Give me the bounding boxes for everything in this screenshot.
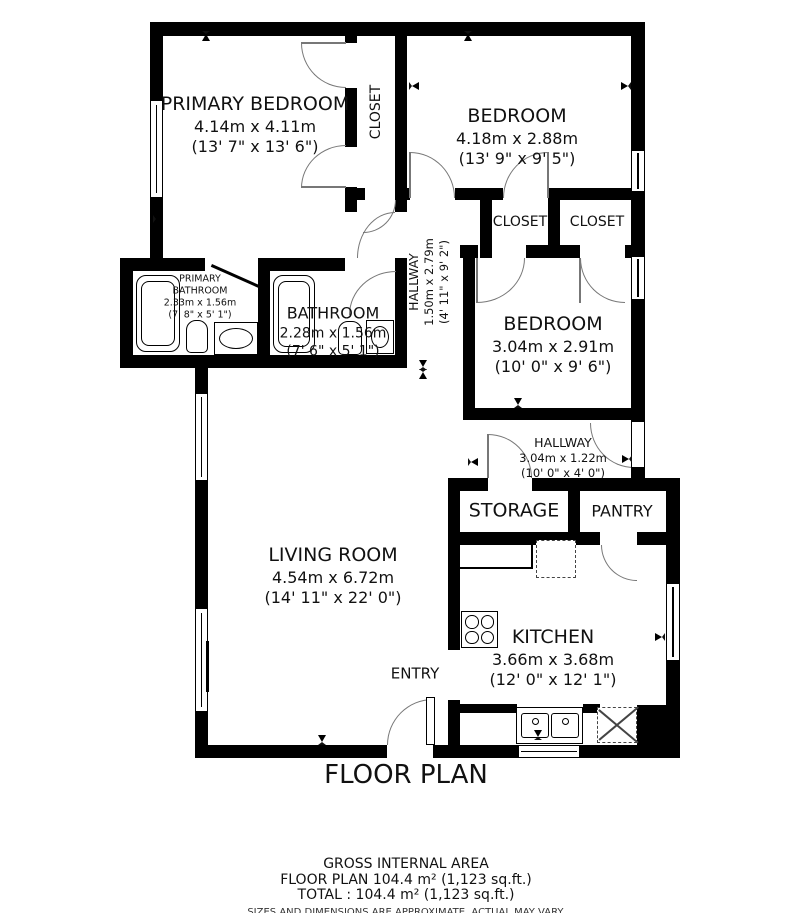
- wall: [258, 258, 345, 271]
- bathroom-label: BATHROOM 2.28m x 1.56m (7' 6" x 5' 1"): [280, 303, 387, 360]
- living-room-label: LIVING ROOM 4.54m x 6.72m (14' 11" x 22'…: [264, 543, 401, 609]
- door-leaf: [301, 186, 346, 188]
- dimension-arrow: [468, 458, 478, 466]
- gross-internal-area: GROSS INTERNAL AREA: [0, 857, 812, 873]
- dimension-arrow: [534, 730, 542, 740]
- kitchen-label: KITCHEN 3.66m x 3.68m (12' 0" x 12' 1"): [490, 625, 617, 691]
- door-arc: [601, 545, 637, 581]
- door-leaf: [487, 434, 489, 478]
- wall: [433, 745, 518, 758]
- dimension-arrow: [621, 82, 631, 90]
- wall: [195, 481, 208, 608]
- toilet: [186, 320, 208, 353]
- counter-line: [460, 567, 533, 569]
- wall: [395, 200, 407, 212]
- wall: [150, 198, 163, 265]
- window: [518, 745, 580, 758]
- dimension-arrow: [409, 82, 419, 90]
- dimension-arrow: [655, 633, 665, 641]
- dimension-arrow: [202, 31, 210, 41]
- counter-wall: [460, 704, 517, 713]
- wall: [120, 258, 205, 271]
- floor-plan-page: PRIMARY BEDROOM 4.14m x 4.11m (13' 7" x …: [0, 0, 812, 913]
- counter-line: [531, 545, 533, 568]
- kitchen-sink: [516, 707, 583, 744]
- bedroom-top-label: BEDROOM 4.18m x 2.88m (13' 9" x 9' 5"): [456, 104, 578, 170]
- wall: [580, 745, 645, 758]
- hatched-area: [597, 707, 637, 743]
- wall: [631, 22, 645, 150]
- sink: [214, 322, 258, 355]
- wall: [448, 532, 600, 545]
- wall: [345, 22, 357, 43]
- wall: [345, 188, 365, 200]
- door-arc: [477, 258, 525, 303]
- door-arc: [580, 258, 625, 303]
- dimension-arrow: [318, 735, 326, 745]
- wall: [448, 478, 460, 650]
- door-leaf: [579, 258, 581, 303]
- hallway-upper-label: HALLWAY 1.50m x 2.79m (4' 11" x 9' 2"): [406, 238, 452, 326]
- pantry-label: PANTRY: [591, 502, 652, 523]
- door-panel: [631, 421, 645, 468]
- wall: [448, 700, 460, 758]
- wall: [460, 478, 488, 491]
- window: [631, 256, 645, 300]
- wall: [150, 22, 163, 100]
- wall: [195, 355, 208, 393]
- dimension-arrow: [622, 455, 632, 463]
- wall: [120, 258, 133, 368]
- door-leaf: [476, 258, 478, 303]
- door-arc: [301, 43, 346, 88]
- closet-right-label: CLOSET: [570, 213, 624, 231]
- door-arc: [410, 152, 455, 198]
- door-leaf: [301, 42, 346, 44]
- floor-plan-area: FLOOR PLAN 104.4 m² (1,123 sq.ft.): [0, 873, 812, 889]
- page-title: FLOOR PLAN: [0, 760, 812, 790]
- entry-label: ENTRY: [391, 664, 440, 684]
- primary-bathroom-label: PRIMARY BATHROOM 2.33m x 1.56m (7' 8" x …: [164, 273, 236, 321]
- total-area: TOTAL : 104.4 m² (1,123 sq.ft.): [0, 888, 812, 904]
- appliance-space: [536, 540, 576, 578]
- door-leaf: [409, 152, 411, 198]
- window: [666, 583, 680, 661]
- primary-bedroom-label: PRIMARY BEDROOM 4.14m x 4.11m (13' 7" x …: [161, 92, 349, 158]
- wall: [395, 188, 410, 200]
- wall: [526, 245, 580, 258]
- window: [195, 393, 208, 481]
- closet-label: CLOSET: [367, 85, 385, 139]
- wall: [258, 271, 270, 355]
- wall: [637, 532, 680, 545]
- footer: GROSS INTERNAL AREA FLOOR PLAN 104.4 m² …: [0, 857, 812, 913]
- wall: [631, 300, 645, 423]
- dimension-arrow: [464, 31, 472, 41]
- storage-label: STORAGE: [469, 499, 559, 524]
- sliding-door-panel: [206, 641, 209, 692]
- disclaimer: SIZES AND DIMENSIONS ARE APPROXIMATE, AC…: [0, 907, 812, 913]
- window: [631, 150, 645, 192]
- dimension-arrow: [419, 369, 427, 379]
- wall: [455, 188, 503, 200]
- wall: [395, 22, 407, 188]
- door-panel: [426, 697, 435, 745]
- hallway-lower-label: HALLWAY 3.04m x 1.22m (10' 0" x 4' 0"): [519, 435, 607, 481]
- closet-left-label: CLOSET: [493, 213, 547, 231]
- wall: [480, 200, 492, 258]
- dimension-arrow: [153, 215, 163, 223]
- bedroom-mid-label: BEDROOM 3.04m x 2.91m (10' 0" x 9' 6"): [492, 312, 614, 378]
- wall: [463, 245, 475, 420]
- wall: [463, 408, 645, 420]
- dimension-arrow: [514, 398, 522, 408]
- wall: [195, 745, 387, 758]
